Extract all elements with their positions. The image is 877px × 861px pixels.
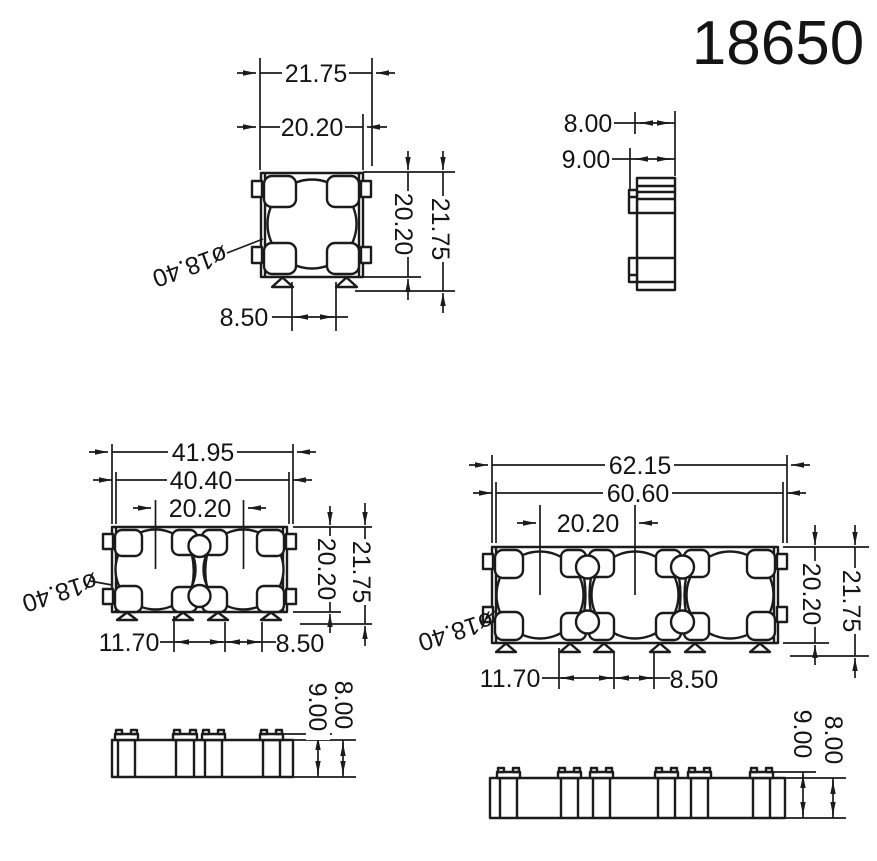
view-double-side: 9.00 8.00: [112, 672, 357, 777]
side-tab: [286, 589, 296, 604]
side-tab: [103, 534, 113, 549]
dim-label-cell-diameter: ø18.40: [415, 606, 498, 657]
dim-line: [612, 123, 675, 159]
mounting-foot: [685, 644, 705, 653]
clip-tooth: [559, 768, 565, 772]
dim-label-cell-pitch: 20.20: [169, 495, 232, 523]
mounting-foot: [272, 278, 293, 288]
view-triple-side: 9.00 8.00: [490, 701, 847, 818]
dim-label-cell-diameter: ø18.40: [19, 567, 102, 618]
clip-tooth: [656, 768, 662, 772]
dim-label-pin-offset: 11.70: [99, 629, 160, 657]
connector-boss: [671, 556, 694, 579]
dim-label-width-outer: 41.95: [172, 439, 235, 467]
side-clip-tab: [629, 190, 637, 213]
connector-boss: [189, 535, 211, 557]
clip-tooth: [606, 768, 612, 772]
dim-label-pin-spacing: 8.50: [276, 630, 325, 658]
dim-label-height-outer: 21.75: [347, 541, 375, 604]
dim-label-depth-total: 9.00: [303, 683, 331, 732]
mounting-foot: [208, 613, 228, 621]
clip-tooth: [203, 730, 209, 734]
clip-tooth: [218, 730, 224, 734]
corner-pad: [747, 550, 775, 578]
clip-tooth: [498, 768, 504, 772]
double-side-geometry: [112, 730, 293, 777]
view-single-front: 21.75 20.20 20.20 21.75 8.50: [149, 58, 455, 332]
side-tab: [361, 181, 371, 197]
clip-tooth: [751, 768, 757, 772]
view-double-front: 41.95 40.40 20.20 20.20 21.75: [19, 439, 375, 658]
connector-boss: [576, 611, 599, 634]
dim-label-cell-pitch: 20.20: [557, 510, 620, 538]
side-tab: [286, 534, 296, 549]
dim-label-pin-offset: 11.70: [480, 665, 541, 693]
dim-label-width-outer: 62.15: [609, 452, 672, 480]
dim-label-height-inner: 20.20: [389, 193, 417, 256]
clip-tooth: [574, 768, 580, 772]
connector-boss: [576, 556, 599, 579]
pin-spacing-lines: [272, 282, 348, 331]
connector-boss: [671, 611, 694, 634]
mounting-foot: [117, 613, 137, 621]
technical-drawing-canvas: 18650 21.75: [0, 0, 877, 861]
mounting-foot: [650, 644, 670, 653]
clip-tooth: [671, 768, 677, 772]
clip-tooth: [190, 730, 196, 734]
dim-label-depth-body: 8.00: [329, 681, 357, 730]
mounting-foot: [594, 644, 614, 653]
triple-side-geometry: [490, 768, 785, 818]
dim-label-depth-body: 8.00: [819, 716, 847, 765]
mounting-foot: [173, 613, 193, 621]
corner-pad: [495, 550, 523, 578]
dim-label-width-inner: 40.40: [170, 467, 233, 495]
holder-side-outline: [637, 178, 675, 290]
dim-label-pin-spacing: 8.50: [220, 304, 269, 332]
connector-boss: [189, 585, 211, 607]
clip-tooth: [704, 768, 710, 772]
dim-label-depth-body: 8.00: [564, 110, 613, 138]
dim-label-pin-spacing: 8.50: [670, 666, 719, 694]
mounting-foot: [261, 613, 281, 621]
corner-pad: [264, 243, 296, 274]
corner-pad: [327, 176, 359, 207]
side-tab: [777, 607, 787, 622]
dim-label-height-inner: 20.20: [797, 563, 825, 626]
dim-label-width-outer: 21.75: [285, 60, 348, 88]
clip-tooth: [766, 768, 772, 772]
clip-tooth: [591, 768, 597, 772]
corner-pad: [495, 612, 523, 640]
clip-tooth: [116, 730, 122, 734]
corner-pad: [747, 612, 775, 640]
clip-tooth: [131, 730, 137, 734]
corner-pad: [115, 586, 142, 612]
dim-label-depth-total: 9.00: [562, 146, 611, 174]
corner-pad: [115, 530, 142, 556]
side-tab: [483, 554, 493, 569]
side-tab: [777, 554, 787, 569]
clip-tooth: [513, 768, 519, 772]
double-front-geometry: [103, 527, 296, 620]
side-tab: [103, 589, 113, 604]
clip-tooth: [174, 730, 180, 734]
pin-dim-lines: [542, 648, 670, 689]
corner-pad: [327, 243, 359, 274]
side-tab: [361, 247, 371, 263]
dim-label-height-inner: 20.20: [312, 538, 340, 601]
corner-pad: [257, 586, 284, 612]
dim-label-width-inner: 60.60: [607, 480, 670, 508]
dim-line: [803, 772, 833, 818]
holder-side-outline: [490, 778, 785, 818]
corner-pad: [257, 530, 284, 556]
mounting-foot: [496, 644, 516, 653]
holder-side-outline: [112, 740, 293, 777]
dim-label-cell-diameter: ø18.40: [149, 240, 232, 293]
view-triple-front: 62.15 60.60 20.20 20.20 21.75: [415, 452, 869, 694]
drawing-page: 18650 21.75: [0, 0, 877, 861]
dim-label-height-outer: 21.75: [837, 570, 865, 633]
part-number-title: 18650: [692, 9, 864, 78]
side-tab: [252, 247, 262, 263]
clip-tooth: [689, 768, 695, 772]
dim-label-depth-total: 9.00: [788, 710, 816, 759]
mounting-foot: [336, 278, 357, 288]
side-tab: [252, 181, 262, 197]
side-clip-tab: [629, 258, 637, 282]
pin-dim-lines: [160, 616, 276, 652]
single-side-geometry: [629, 178, 675, 290]
corner-pad: [264, 176, 296, 207]
dim-label-height-outer: 21.75: [426, 198, 454, 261]
mounting-foot: [750, 644, 770, 653]
mounting-foot: [560, 644, 580, 653]
single-front-geometry: [252, 173, 371, 287]
clip-tooth: [261, 730, 267, 734]
clip-tooth: [276, 730, 282, 734]
dim-label-width-inner: 20.20: [281, 114, 344, 142]
view-single-side: 8.00 9.00: [558, 110, 675, 290]
